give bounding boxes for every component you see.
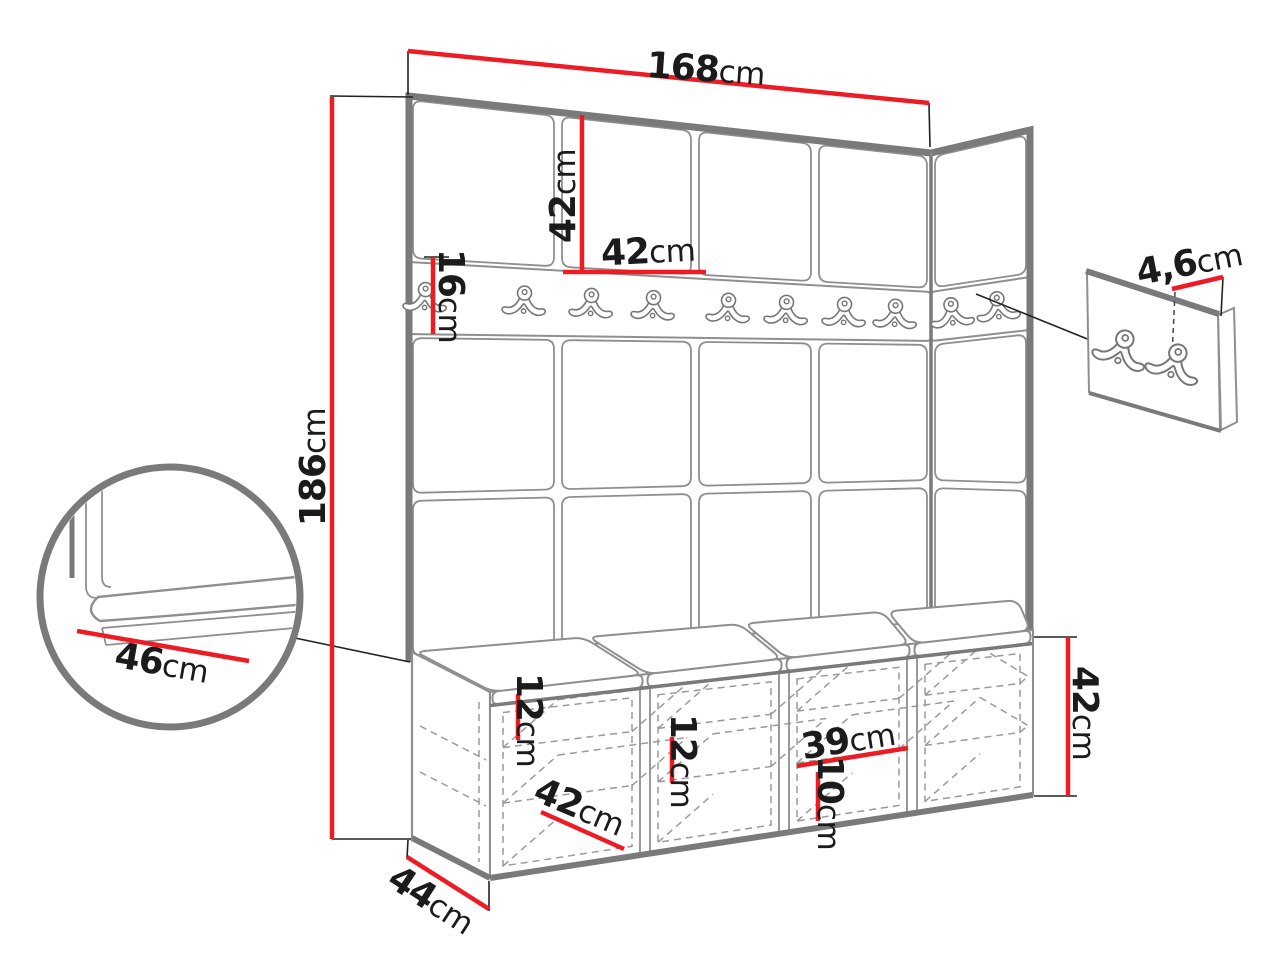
upholstered-panel: [819, 488, 927, 628]
dim-shelf-spacing-mid-label: 12cm: [662, 714, 703, 808]
upholstered-panel: [699, 342, 811, 486]
extension-line: [407, 840, 408, 858]
upholstered-panel: [819, 344, 927, 483]
extension-line: [330, 96, 413, 97]
dim-panel-width-label: 42cm: [600, 229, 696, 275]
upholstered-panel-side: [935, 137, 1026, 287]
upholstered-panel-side: [935, 335, 1026, 482]
upholstered-panel: [699, 133, 811, 281]
hook-plate: [584, 288, 599, 303]
hook-panel-detail-view: [1086, 271, 1237, 431]
upholstered-panel: [413, 338, 554, 493]
seat-corner-detail-view: [40, 455, 306, 727]
detail-pointer-line: [295, 638, 410, 662]
upholstered-panel: [413, 101, 554, 266]
hook-plate: [646, 290, 661, 305]
dim-shelf-spacing-left-label: 12cm: [508, 673, 549, 767]
extension-line: [1221, 277, 1223, 316]
hook-plate: [943, 297, 958, 312]
wall-panel-grid: [409, 101, 1030, 655]
dim-total-height-label: 186cm: [293, 408, 334, 526]
hook-plate: [779, 295, 794, 310]
upholstered-panel: [819, 146, 927, 288]
hook-plate: [837, 297, 852, 312]
furniture-dimension-diagram: 168cm 42cm 42cm 16cm 186cm 4,6cm 46cm 44…: [0, 0, 1280, 960]
upholstered-panel: [699, 491, 811, 636]
hook-plate: [888, 299, 903, 314]
upholstered-panel: [562, 494, 691, 645]
hook-plate: [517, 286, 532, 301]
dim-shelf-spacing-right-label: 10cm: [809, 756, 850, 850]
dim-bench-height-label: 42cm: [1064, 666, 1105, 760]
extension-line: [929, 103, 930, 147]
dim-rail-height-label: 16cm: [430, 249, 471, 343]
hook-plate: [721, 293, 736, 308]
upholstered-panel: [413, 498, 554, 656]
dim-total-width-label: 168cm: [645, 45, 766, 94]
dim-panel-height-label: 42cm: [543, 149, 584, 243]
detail-panel-side-face: [1218, 308, 1237, 430]
upholstered-panel: [562, 340, 691, 489]
